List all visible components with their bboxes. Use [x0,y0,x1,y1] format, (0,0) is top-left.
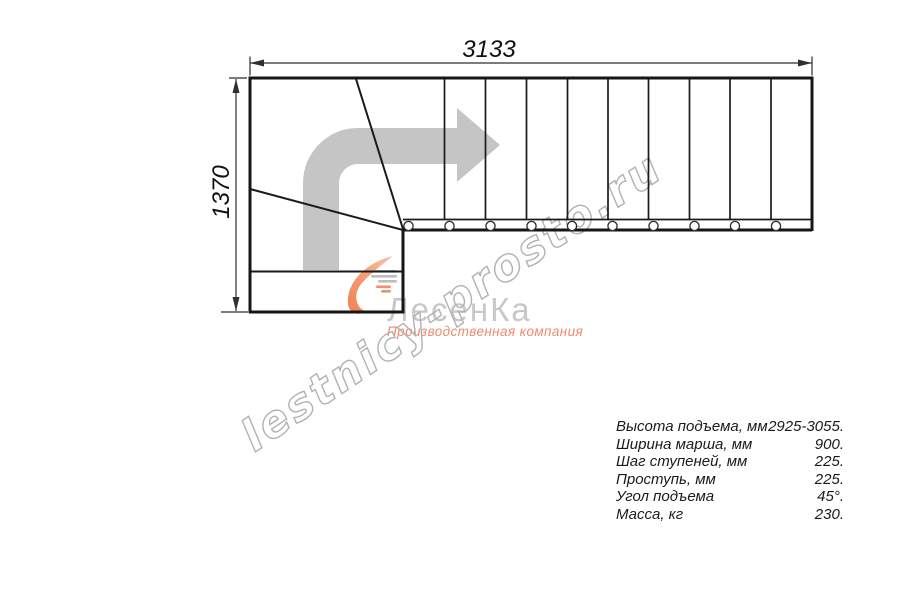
spec-value: 2925-3055. [768,418,844,436]
spec-value: 225. [815,453,844,471]
spec-label: Угол подъема [616,488,714,506]
dimension-left-value: 1370 [208,165,235,219]
dimension-top-value: 3133 [462,36,516,63]
dimension-left: 1370 [208,78,248,312]
spec-row: Ширина марша, мм 900. [616,436,844,454]
spec-label: Высота подъема, мм [616,418,768,436]
spec-label: Шаг ступеней, мм [616,453,747,471]
drawing-sheet: ЛесенКа Производственная компания lestni… [0,0,900,600]
spec-label: Проступь, мм [616,471,716,489]
dimension-top: 3133 [250,36,812,76]
spec-value: 45°. [817,488,844,506]
spec-row: Масса, кг 230. [616,506,844,524]
spec-row: Проступь, мм 225. [616,471,844,489]
spec-table: Высота подъема, мм 2925-3055. Ширина мар… [616,418,844,523]
spec-label: Масса, кг [616,506,683,524]
spec-label: Ширина марша, мм [616,436,752,454]
spec-row: Высота подъема, мм 2925-3055. [616,418,844,436]
spec-value: 230. [815,506,844,524]
spec-value: 225. [815,471,844,489]
spec-row: Шаг ступеней, мм 225. [616,453,844,471]
watermark-text: lestnicy-prosto.ru [232,142,672,462]
spec-value: 900. [815,436,844,454]
spec-row: Угол подъема 45°. [616,488,844,506]
